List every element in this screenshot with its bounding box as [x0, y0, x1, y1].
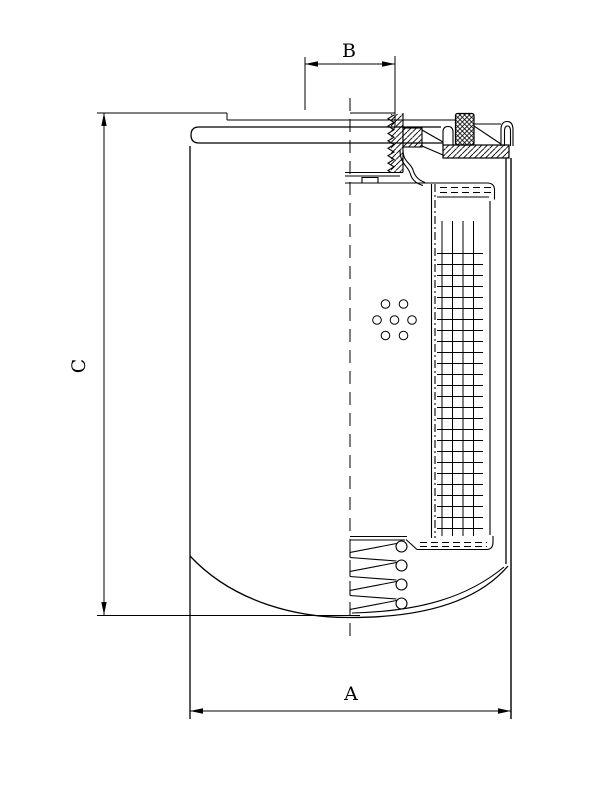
rolled-seam	[501, 122, 513, 147]
filter-element	[345, 183, 495, 550]
dimension-b-label: B	[342, 40, 356, 62]
cone-rolled-tab	[443, 127, 453, 148]
valve-seat-bump	[362, 178, 378, 184]
bottom-end-cap	[350, 536, 493, 550]
dimension-b: B	[305, 40, 395, 127]
dome-bottom-outer	[190, 556, 508, 618]
dimension-c: C	[68, 113, 360, 616]
filter-section-drawing: B C A	[0, 0, 612, 792]
retainer-plate	[443, 145, 509, 158]
boss-flange	[403, 128, 422, 147]
center-tube	[432, 184, 436, 538]
drawing-sheet: B C A	[0, 0, 612, 792]
arrow-up-icon	[101, 113, 106, 126]
dome-bottom-inner	[352, 567, 504, 613]
dimension-c-label: C	[68, 359, 90, 374]
gasket-seal	[456, 114, 475, 146]
arrow-left-icon	[305, 61, 318, 67]
arrow-left-icon	[190, 708, 203, 714]
top-end-assembly	[227, 113, 513, 186]
arrow-down-icon	[101, 602, 106, 615]
cone-lower	[422, 146, 443, 155]
coil-spring	[350, 541, 407, 613]
filter-media-pleats	[437, 221, 483, 536]
top-end-cap	[345, 183, 495, 200]
dimension-a-label: A	[343, 683, 358, 705]
arrow-right-icon	[382, 61, 395, 67]
dimension-a: A	[190, 683, 511, 714]
cone-upper	[422, 130, 443, 142]
arrow-right-icon	[498, 708, 511, 714]
perforation-holes	[373, 300, 417, 340]
